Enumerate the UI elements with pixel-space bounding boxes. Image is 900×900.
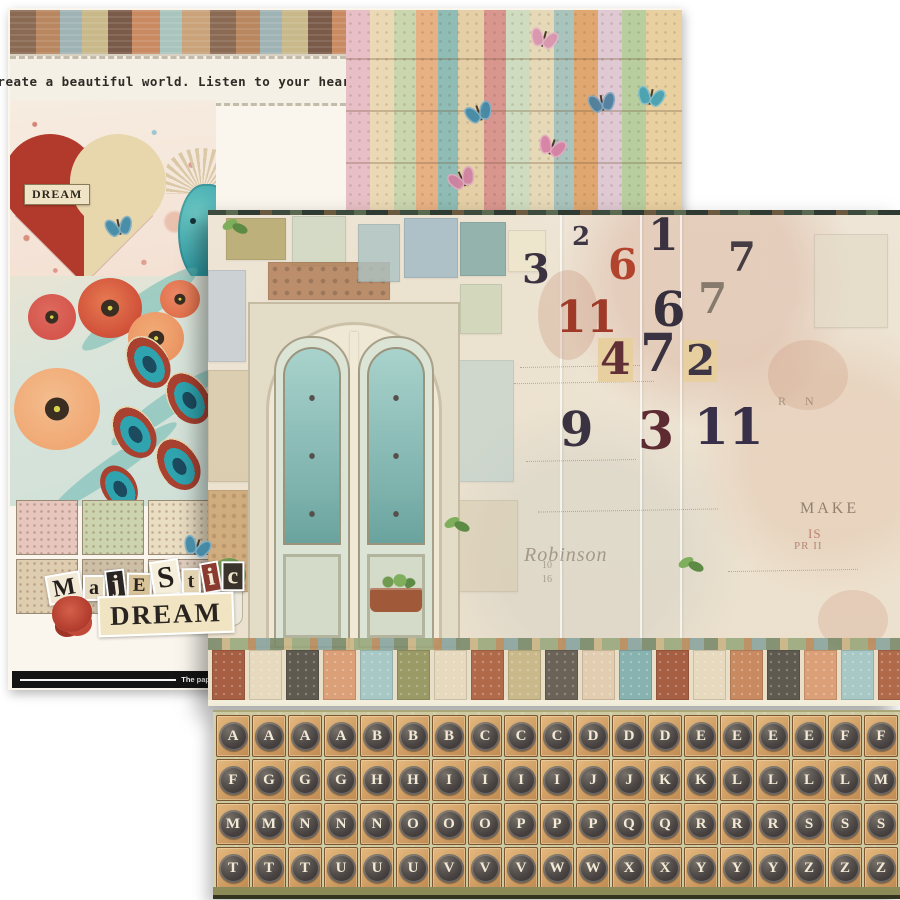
typewriter-key: K (648, 759, 682, 801)
key-cap: G (255, 766, 284, 795)
typewriter-key: Z (828, 847, 862, 889)
key-cap: T (219, 854, 248, 883)
typewriter-key-strip: AAAABBBCCCDDDEEEEFF FGGGHHIIIIJJKKLLLLM … (213, 710, 900, 899)
scrapbook-paper-product-photo: Create a beautiful world. Listen to your… (0, 0, 900, 900)
key-cap: L (759, 766, 788, 795)
typewriter-key: L (792, 759, 826, 801)
key-letter: H (407, 773, 419, 788)
typewriter-key: E (756, 715, 790, 757)
collage-number: 6 (606, 244, 639, 286)
border-block (619, 650, 652, 700)
border-block (286, 650, 319, 700)
typewriter-key: W (540, 847, 574, 889)
key-letter: L (804, 773, 814, 788)
collage-number: 1 (646, 214, 681, 258)
key-cap: N (327, 810, 356, 839)
key-cap: R (687, 810, 716, 839)
key-letter: U (336, 861, 347, 876)
key-cap: I (435, 766, 464, 795)
key-letter: Q (659, 817, 671, 832)
key-letter: P (588, 817, 597, 832)
key-letter: N (372, 817, 383, 832)
key-letter: R (768, 817, 779, 832)
key-cap: Y (723, 854, 752, 883)
key-letter: P (516, 817, 525, 832)
key-row: TTTUUUVVVWWXXYYYZZZ (215, 847, 899, 891)
typewriter-key: O (396, 803, 430, 845)
butterfly-icon (463, 98, 495, 128)
key-letter: I (518, 773, 524, 788)
header-text-band: Create a beautiful world. Listen to your… (10, 56, 346, 106)
key-letter: X (660, 861, 671, 876)
key-cap: H (399, 766, 428, 795)
typewriter-key: U (324, 847, 358, 889)
border-block (767, 650, 800, 700)
key-cap: H (363, 766, 392, 795)
ephemera-text: R N (778, 394, 822, 409)
front-sheet: 2136711674729311MAKEISPR IIRobinsonR N10… (208, 210, 900, 706)
key-letter: D (624, 729, 635, 744)
key-row: FGGGHHIIIIJJKKLLLLM (215, 759, 899, 803)
key-cap: O (435, 810, 464, 839)
butterfly-icon (536, 132, 568, 162)
border-block (545, 650, 578, 700)
key-cap: K (687, 766, 716, 795)
key-letter: S (877, 817, 885, 832)
key-letter: R (732, 817, 743, 832)
poppy-flower (160, 280, 200, 318)
poppies-and-feathers-painting (10, 276, 216, 506)
key-cap: D (579, 722, 608, 751)
key-cap: S (831, 810, 860, 839)
typewriter-key: M (252, 803, 286, 845)
border-block (360, 650, 393, 700)
key-letter: Y (732, 861, 743, 876)
key-letter: L (768, 773, 778, 788)
key-letter: F (876, 729, 885, 744)
key-cap: D (615, 722, 644, 751)
typewriter-key: X (612, 847, 646, 889)
key-cap: D (651, 722, 680, 751)
typewriter-key: F (216, 759, 250, 801)
key-letter: F (228, 773, 237, 788)
poppy-flower (52, 596, 92, 632)
dream-tag: DREAM (24, 184, 90, 205)
collage-number: 9 (558, 406, 595, 454)
key-letter: Q (623, 817, 635, 832)
typewriter-key: L (720, 759, 754, 801)
typewriter-key: K (684, 759, 718, 801)
key-cap: V (471, 854, 500, 883)
key-letter: Z (840, 861, 850, 876)
typewriter-key: C (468, 715, 502, 757)
key-cap: J (615, 766, 644, 795)
key-letter: R (696, 817, 707, 832)
key-letter: A (264, 729, 275, 744)
key-letter: F (840, 729, 849, 744)
key-letter: D (660, 729, 671, 744)
key-letter: J (589, 773, 597, 788)
ransom-letter: t (182, 568, 201, 594)
typewriter-key: S (828, 803, 862, 845)
typewriter-key: N (360, 803, 394, 845)
key-cap: F (831, 722, 860, 751)
border-block (730, 650, 763, 700)
key-letter: C (480, 729, 491, 744)
typewriter-key: D (648, 715, 682, 757)
key-cap: R (759, 810, 788, 839)
key-letter: N (336, 817, 347, 832)
key-cap: I (543, 766, 572, 795)
ransom-letter: S (149, 558, 183, 598)
key-letter: U (372, 861, 383, 876)
key-cap: Q (615, 810, 644, 839)
key-cap: Z (831, 854, 860, 883)
collage-number: 7 (638, 328, 678, 380)
sheet-bottom-edge (208, 700, 900, 706)
key-cap: A (327, 722, 356, 751)
key-cap: L (723, 766, 752, 795)
patchwork-border-strip (208, 650, 900, 700)
strip-footer-band (213, 887, 900, 899)
key-letter: Z (804, 861, 814, 876)
key-cap: N (291, 810, 320, 839)
typewriter-key: D (576, 715, 610, 757)
key-cap: F (867, 722, 896, 751)
key-cap: L (831, 766, 860, 795)
footer-bar: The pap (12, 671, 212, 688)
key-cap: U (363, 854, 392, 883)
collage-number: 3 (636, 406, 676, 458)
typewriter-key: N (288, 803, 322, 845)
typewriter-key: B (360, 715, 394, 757)
collage-number: 2 (684, 340, 717, 382)
key-cap: I (471, 766, 500, 795)
key-letter: J (625, 773, 633, 788)
typewriter-key: X (648, 847, 682, 889)
key-letter: A (228, 729, 239, 744)
key-letter: I (482, 773, 488, 788)
key-cap: Q (651, 810, 680, 839)
typewriter-key: B (432, 715, 466, 757)
border-block (693, 650, 726, 700)
key-cap: K (651, 766, 680, 795)
key-cap: X (615, 854, 644, 883)
butterfly-icon (587, 90, 616, 116)
ephemera-text: MAKE (800, 500, 859, 518)
typewriter-key: E (792, 715, 826, 757)
ephemera-text: PR II (794, 540, 823, 552)
collage-number: 7 (726, 238, 758, 278)
key-cap: Z (867, 854, 896, 883)
typewriter-key: Y (684, 847, 718, 889)
border-block (471, 650, 504, 700)
key-cap: O (399, 810, 428, 839)
key-letter: L (732, 773, 742, 788)
key-letter: V (480, 861, 491, 876)
key-cap: B (435, 722, 464, 751)
key-cap: I (507, 766, 536, 795)
typewriter-key: V (432, 847, 466, 889)
collage-numbers-layer: 2136711674729311MAKEISPR IIRobinsonR N10… (208, 210, 900, 706)
key-cap: P (543, 810, 572, 839)
border-block (434, 650, 467, 700)
typewriter-key: J (612, 759, 646, 801)
ransom-letter: c (221, 561, 244, 591)
key-cap: X (651, 854, 680, 883)
key-cap: E (759, 722, 788, 751)
typewriter-key: E (684, 715, 718, 757)
border-block (397, 650, 430, 700)
key-letter: B (408, 729, 418, 744)
poppy-flower (28, 294, 76, 340)
ephemera-text: 16 (542, 574, 552, 585)
key-letter: L (840, 773, 850, 788)
key-cap: A (219, 722, 248, 751)
key-letter: X (624, 861, 635, 876)
typewriter-key: G (252, 759, 286, 801)
key-letter: I (446, 773, 452, 788)
key-letter: W (550, 861, 565, 876)
typewriter-key: O (432, 803, 466, 845)
key-cap: W (579, 854, 608, 883)
typewriter-key: S (792, 803, 826, 845)
key-cap: L (795, 766, 824, 795)
key-cap: P (507, 810, 536, 839)
key-cap: R (723, 810, 752, 839)
key-letter: S (841, 817, 849, 832)
typewriter-key: M (216, 803, 250, 845)
key-cap: C (471, 722, 500, 751)
key-letter: K (695, 773, 707, 788)
typewriter-key: F (864, 715, 898, 757)
key-cap: G (327, 766, 356, 795)
typewriter-key: O (468, 803, 502, 845)
mosaic-band (208, 638, 900, 650)
key-cap: J (579, 766, 608, 795)
key-cap: M (255, 810, 284, 839)
typewriter-key: C (504, 715, 538, 757)
key-cap: C (543, 722, 572, 751)
key-cap: M (219, 810, 248, 839)
key-letter: A (336, 729, 347, 744)
typewriter-key: L (756, 759, 790, 801)
key-cap: C (507, 722, 536, 751)
typewriter-key: W (576, 847, 610, 889)
key-letter: C (516, 729, 527, 744)
key-cap: U (399, 854, 428, 883)
typewriter-key: C (540, 715, 574, 757)
header-quote: Create a beautiful world. Listen to your… (0, 74, 367, 89)
key-cap: M (867, 766, 896, 795)
border-block (582, 650, 615, 700)
key-cap: T (291, 854, 320, 883)
key-cap: G (291, 766, 320, 795)
border-block (804, 650, 837, 700)
key-letter: A (300, 729, 311, 744)
collage-number: 11 (692, 402, 766, 452)
collage-top-band (10, 10, 346, 56)
key-letter: S (805, 817, 813, 832)
typewriter-key: I (432, 759, 466, 801)
key-cap: B (363, 722, 392, 751)
key-cap: Z (795, 854, 824, 883)
key-letter: O (407, 817, 419, 832)
dream-subtitle: DREAM (97, 592, 234, 638)
key-letter: V (516, 861, 527, 876)
key-letter: E (768, 729, 778, 744)
footer-rule (20, 679, 176, 681)
key-letter: E (732, 729, 742, 744)
ephemera-text: 10 (542, 560, 552, 571)
key-letter: T (300, 861, 310, 876)
key-letter: H (371, 773, 383, 788)
typewriter-key: H (396, 759, 430, 801)
typewriter-key: N (324, 803, 358, 845)
typewriter-key: F (828, 715, 862, 757)
key-letter: E (696, 729, 706, 744)
key-cap: A (255, 722, 284, 751)
typewriter-key: A (216, 715, 250, 757)
key-cap: E (723, 722, 752, 751)
typewriter-key: A (324, 715, 358, 757)
key-cap: S (867, 810, 896, 839)
typewriter-key: A (252, 715, 286, 757)
key-letter: Z (876, 861, 886, 876)
key-letter: W (586, 861, 601, 876)
pattern-swatch (16, 500, 78, 555)
key-letter: D (588, 729, 599, 744)
ephemera-text: Robinson (524, 544, 608, 567)
key-cap: W (543, 854, 572, 883)
typewriter-key: S (864, 803, 898, 845)
typewriter-key: L (828, 759, 862, 801)
key-letter: T (264, 861, 274, 876)
pattern-swatch (82, 500, 144, 555)
typewriter-key: R (756, 803, 790, 845)
border-block (841, 650, 874, 700)
typewriter-key: Q (612, 803, 646, 845)
key-cap: F (219, 766, 248, 795)
typewriter-key: B (396, 715, 430, 757)
typewriter-key: P (504, 803, 538, 845)
key-row: MMNNNOOOPPPQQRRRSSS (215, 803, 899, 847)
typewriter-key: H (360, 759, 394, 801)
typewriter-key: T (216, 847, 250, 889)
key-letter: K (659, 773, 671, 788)
key-letter: Y (696, 861, 707, 876)
border-block (508, 650, 541, 700)
collage-number: 4 (598, 338, 633, 382)
key-letter: T (228, 861, 238, 876)
key-cap: E (687, 722, 716, 751)
typewriter-key: D (612, 715, 646, 757)
butterfly-patchwork (346, 10, 682, 216)
key-cap: P (579, 810, 608, 839)
key-letter: V (444, 861, 455, 876)
key-cap: V (507, 854, 536, 883)
key-cap: A (291, 722, 320, 751)
typewriter-key: T (252, 847, 286, 889)
key-letter: B (444, 729, 454, 744)
typewriter-key: E (720, 715, 754, 757)
splatter-art-panel: DREAM (10, 100, 216, 506)
key-letter: N (300, 817, 311, 832)
border-block (878, 650, 900, 700)
typewriter-key: P (576, 803, 610, 845)
typewriter-key: I (504, 759, 538, 801)
key-letter: M (226, 817, 240, 832)
border-block (249, 650, 282, 700)
key-cap: O (471, 810, 500, 839)
butterfly-icon (636, 84, 666, 111)
key-letter: G (263, 773, 275, 788)
key-cap: Y (687, 854, 716, 883)
key-letter: O (443, 817, 455, 832)
typewriter-key: Z (864, 847, 898, 889)
typewriter-key: J (576, 759, 610, 801)
key-cap: N (363, 810, 392, 839)
key-cap: B (399, 722, 428, 751)
key-cap: T (255, 854, 284, 883)
typewriter-key: R (684, 803, 718, 845)
key-letter: I (554, 773, 560, 788)
typewriter-key: Z (792, 847, 826, 889)
key-cap: V (435, 854, 464, 883)
border-block (323, 650, 356, 700)
butterfly-icon (446, 164, 479, 195)
poppy-flower (14, 368, 100, 450)
typewriter-key: Y (756, 847, 790, 889)
key-cap: Y (759, 854, 788, 883)
collage-number: 3 (520, 250, 552, 290)
key-letter: O (479, 817, 491, 832)
key-letter: G (299, 773, 311, 788)
patchwork-heart (16, 148, 152, 284)
key-cap: S (795, 810, 824, 839)
border-block (212, 650, 245, 700)
typewriter-key: V (504, 847, 538, 889)
typewriter-key: G (288, 759, 322, 801)
key-letter: B (372, 729, 382, 744)
key-letter: P (552, 817, 561, 832)
typewriter-key: U (396, 847, 430, 889)
typewriter-key: I (540, 759, 574, 801)
typewriter-key: Y (720, 847, 754, 889)
key-letter: G (335, 773, 347, 788)
key-letter: U (408, 861, 419, 876)
collage-number: 2 (570, 224, 592, 250)
typewriter-key: Q (648, 803, 682, 845)
key-row: AAAABBBCCCDDDEEEEFF (215, 715, 899, 759)
border-block (656, 650, 689, 700)
typewriter-key: G (324, 759, 358, 801)
key-letter: C (552, 729, 563, 744)
key-letter: Y (768, 861, 779, 876)
typewriter-key: U (360, 847, 394, 889)
collage-number: 7 (696, 278, 729, 320)
key-letter: M (874, 773, 888, 788)
key-cap: E (795, 722, 824, 751)
typewriter-key: R (720, 803, 754, 845)
key-cap: U (327, 854, 356, 883)
typewriter-key: M (864, 759, 898, 801)
typewriter-key: P (540, 803, 574, 845)
typewriter-key: T (288, 847, 322, 889)
ransom-letter: i (199, 560, 223, 594)
key-letter: M (262, 817, 276, 832)
typewriter-key: V (468, 847, 502, 889)
